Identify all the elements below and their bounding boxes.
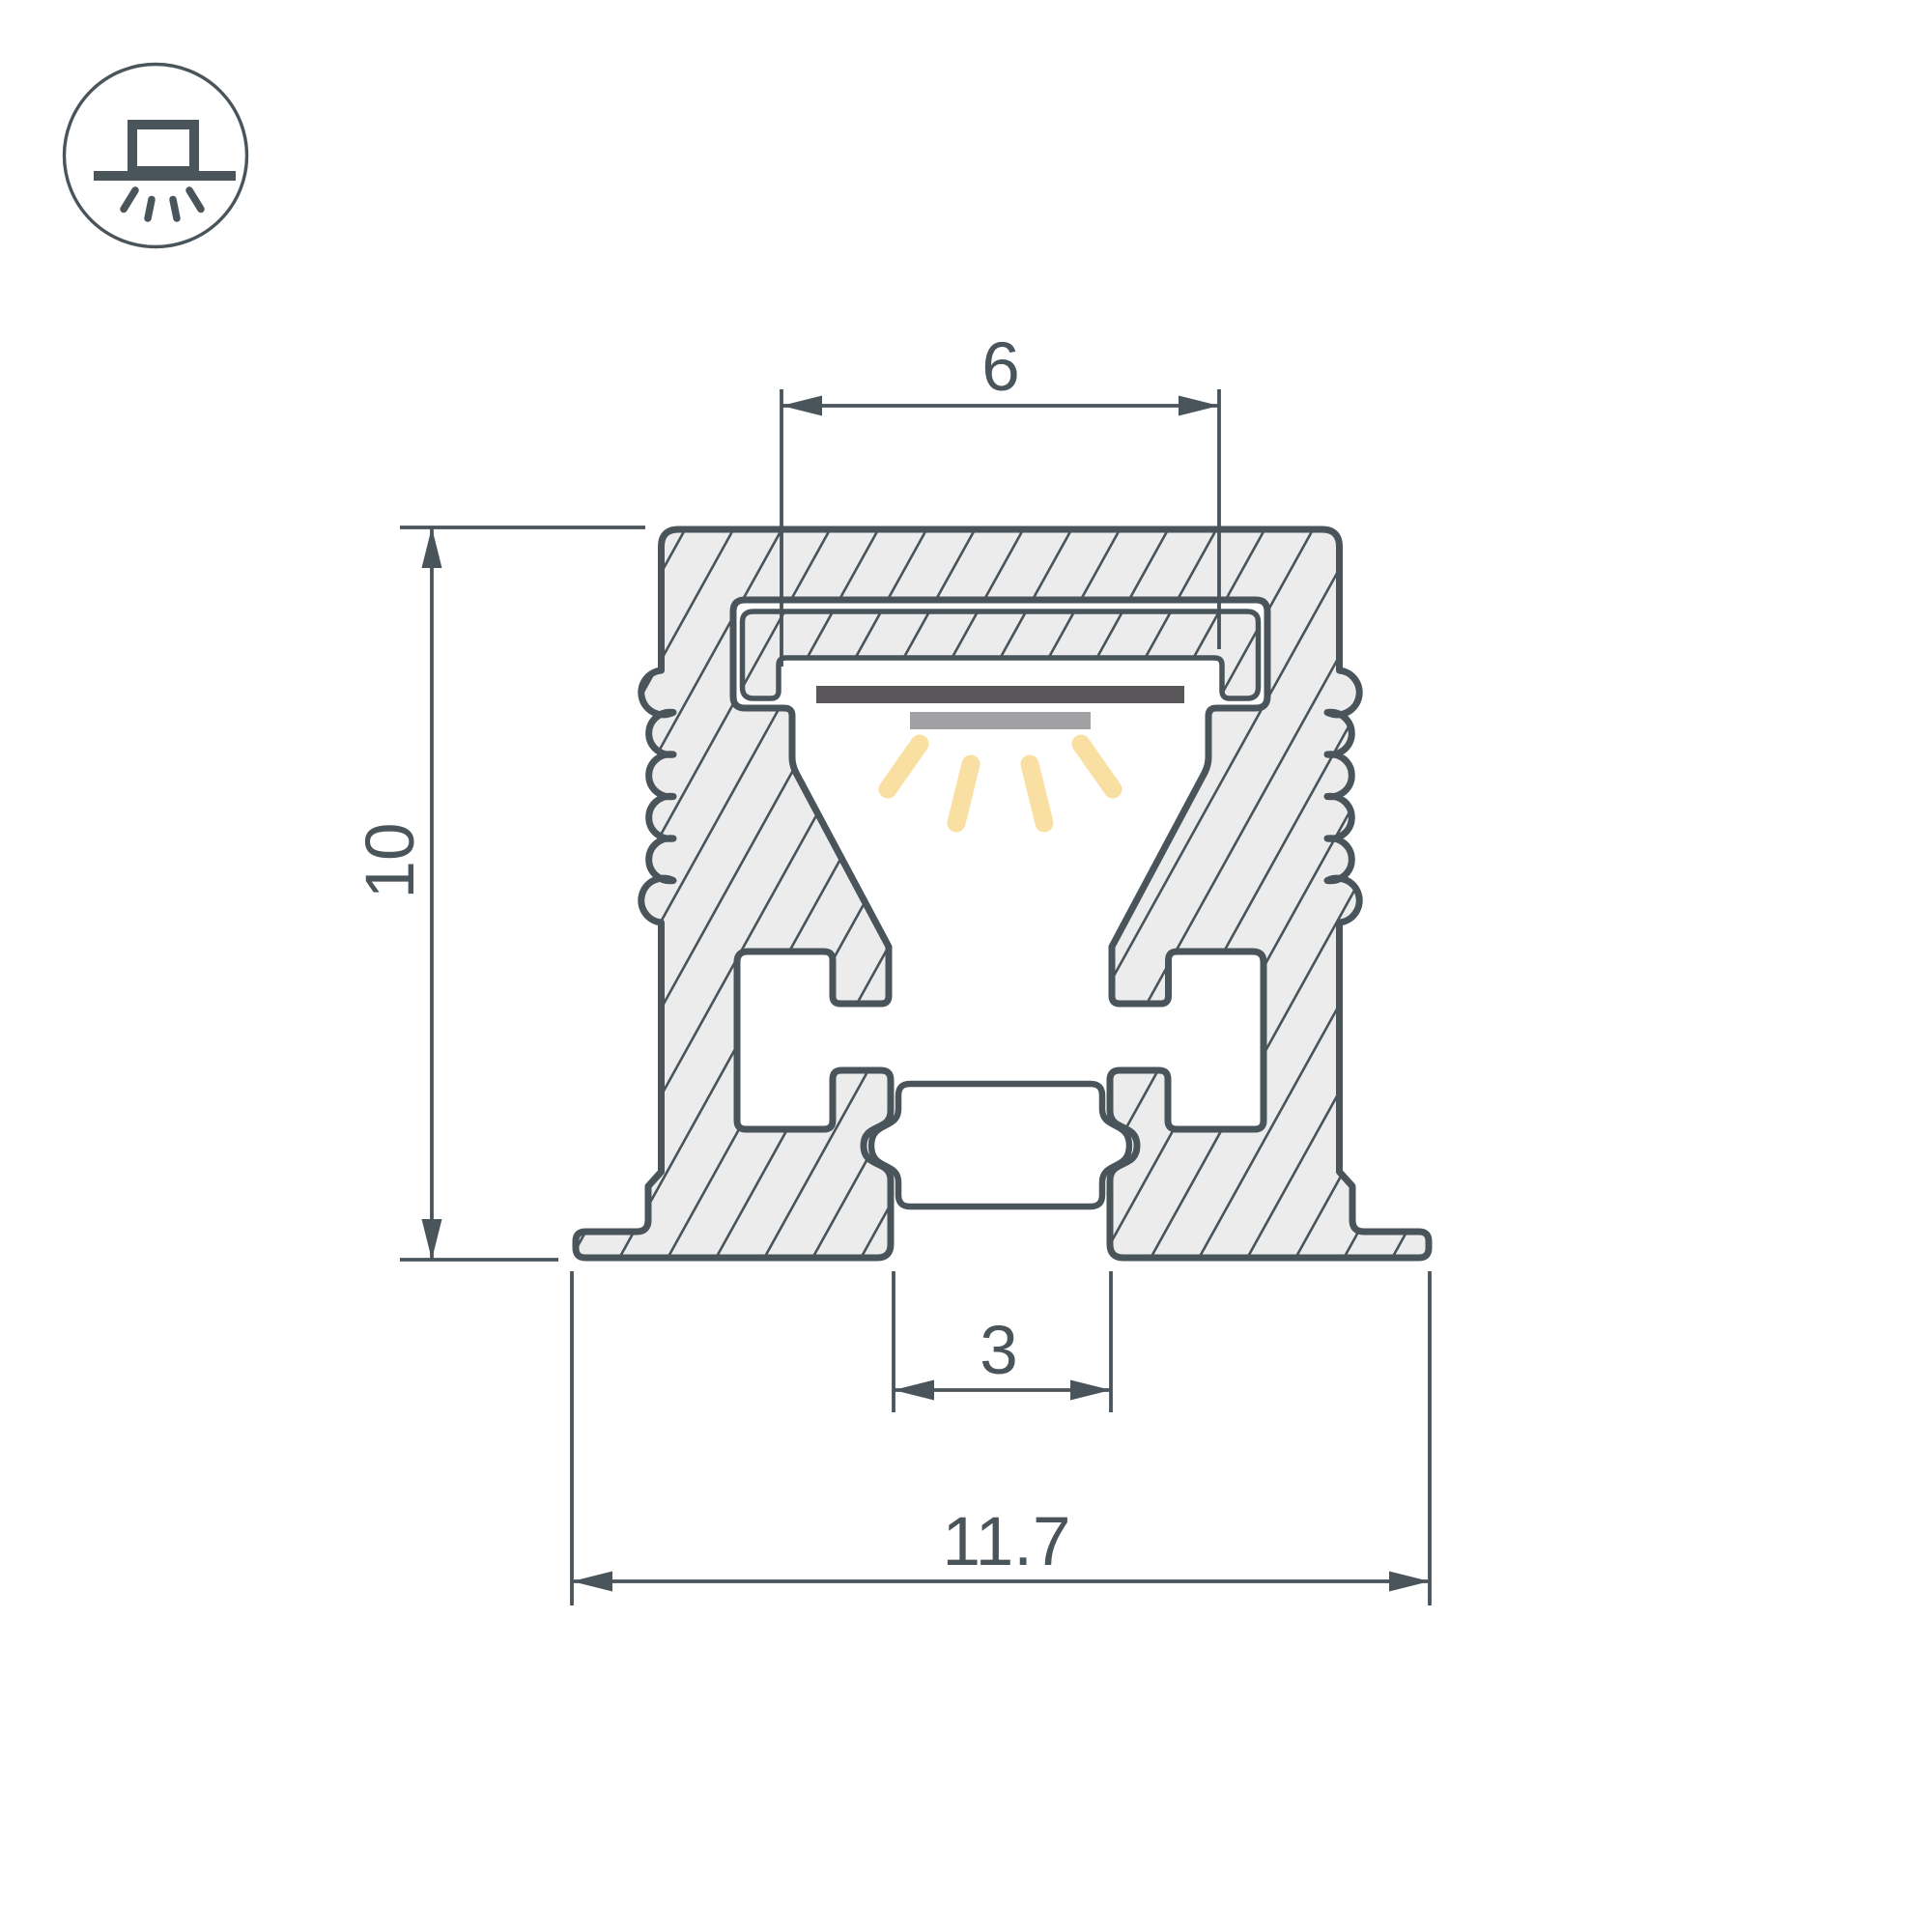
svg-text:11.7: 11.7 — [943, 1504, 1071, 1580]
svg-text:10: 10 — [353, 823, 429, 899]
svg-text:3: 3 — [980, 1313, 1018, 1389]
svg-text:6: 6 — [981, 329, 1020, 406]
